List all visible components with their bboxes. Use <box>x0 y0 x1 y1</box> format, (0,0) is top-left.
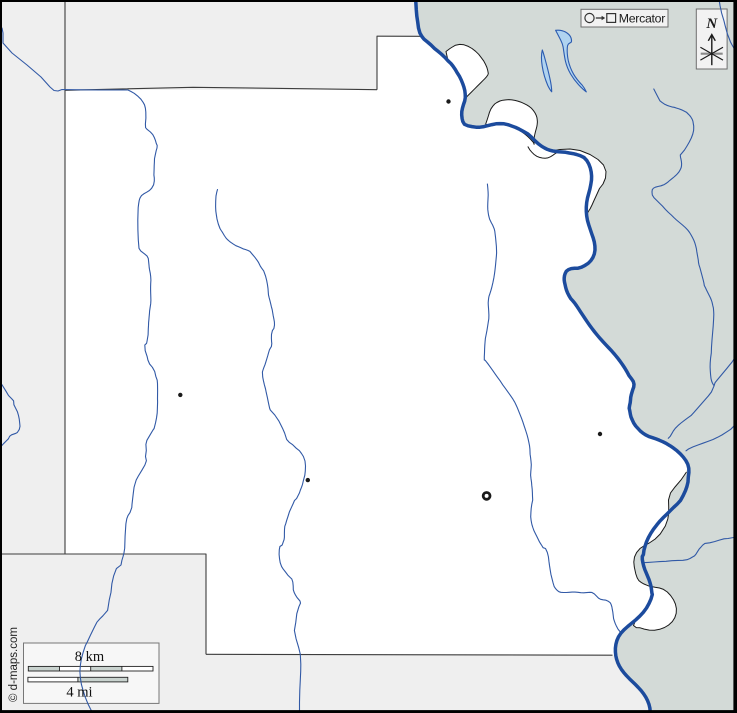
svg-text:© d-maps.com: © d-maps.com <box>8 627 20 702</box>
svg-text:4 mi: 4 mi <box>66 685 92 701</box>
svg-text:8 km: 8 km <box>75 649 105 665</box>
svg-text:N: N <box>705 16 718 32</box>
svg-text:Mercator: Mercator <box>619 11 666 25</box>
